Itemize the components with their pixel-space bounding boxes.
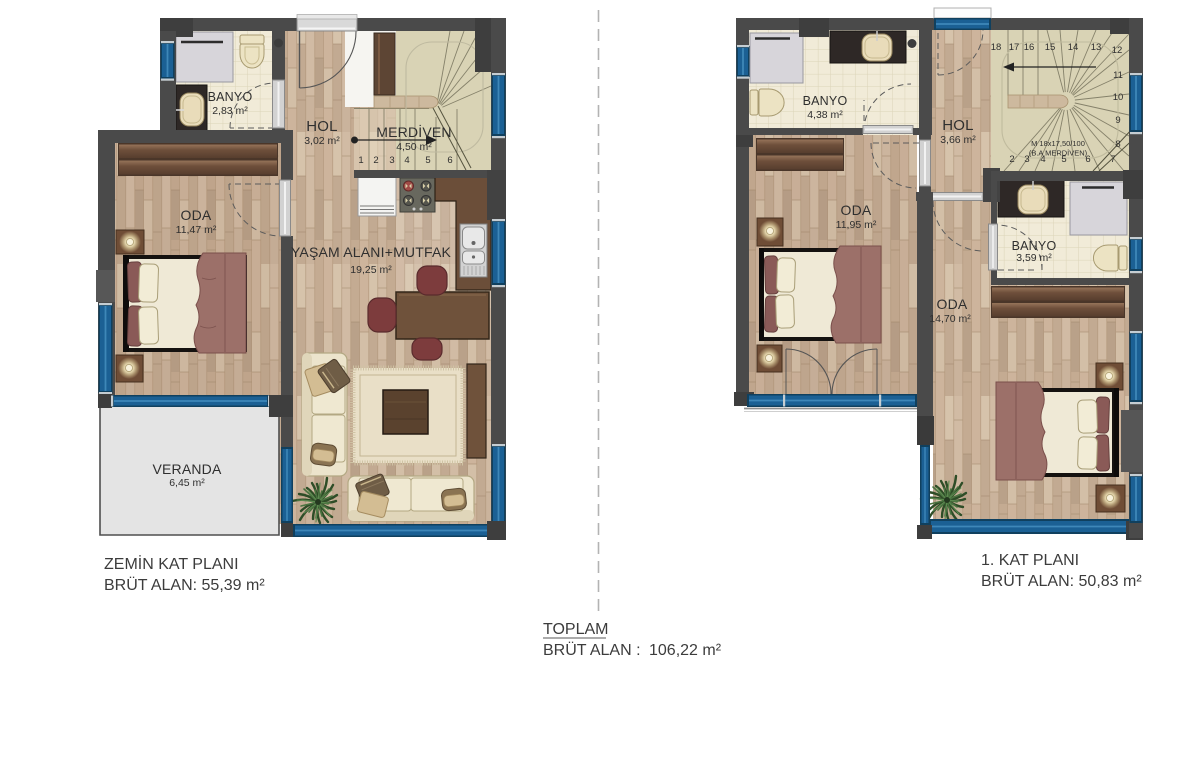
svg-text:18: 18 — [991, 42, 1002, 53]
svg-text:BANYO: BANYO — [1012, 239, 1057, 253]
svg-text:2,83 m²: 2,83 m² — [212, 105, 248, 117]
svg-text:19,25 m²: 19,25 m² — [350, 264, 392, 276]
svg-text:16: 16 — [1024, 42, 1035, 53]
svg-text:5: 5 — [425, 155, 430, 166]
svg-text:11: 11 — [1113, 70, 1123, 81]
svg-text:ODA: ODA — [937, 296, 968, 312]
svg-text:ODA: ODA — [181, 207, 212, 223]
svg-text:2: 2 — [1009, 154, 1014, 165]
svg-text:3,59 m²: 3,59 m² — [1016, 252, 1052, 264]
svg-text:10: 10 — [1113, 92, 1124, 103]
svg-text:3: 3 — [389, 155, 394, 166]
svg-text:2: 2 — [373, 155, 378, 166]
svg-text:1: 1 — [358, 155, 363, 166]
svg-text:BANYO: BANYO — [208, 90, 253, 104]
svg-text:6: 6 — [447, 155, 452, 166]
svg-text:9: 9 — [1115, 115, 1120, 126]
svg-text:HOL: HOL — [306, 118, 337, 135]
svg-text:TOPLAM: TOPLAM — [543, 621, 609, 638]
svg-text:4,38 m²: 4,38 m² — [807, 109, 843, 121]
svg-text:3,66 m²: 3,66 m² — [940, 134, 976, 146]
svg-text:3,02 m²: 3,02 m² — [304, 135, 340, 147]
svg-text:13: 13 — [1091, 42, 1102, 53]
svg-text:11,47 m²: 11,47 m² — [176, 224, 217, 236]
svg-text:14: 14 — [1068, 42, 1079, 53]
svg-text:17: 17 — [1009, 42, 1020, 53]
svg-text:ODA: ODA — [841, 202, 872, 218]
svg-text:15: 15 — [1045, 42, 1056, 53]
svg-text:1. KAT PLANI: 1. KAT PLANI — [981, 552, 1079, 569]
svg-text:YAŞAM ALANI+MUTFAK: YAŞAM ALANI+MUTFAK — [291, 244, 452, 260]
svg-text:MERDİVEN: MERDİVEN — [376, 123, 452, 140]
svg-text:11,95 m²: 11,95 m² — [836, 219, 877, 231]
svg-text:BRÜT ALAN :: BRÜT ALAN : — [543, 641, 641, 659]
svg-text:VERANDA: VERANDA — [152, 461, 222, 477]
svg-text:7: 7 — [1110, 154, 1115, 165]
svg-text:4,50 m²: 4,50 m² — [396, 141, 432, 153]
svg-text:M 18x17,50/100: M 18x17,50/100 — [1031, 139, 1085, 148]
svg-text:4: 4 — [404, 155, 409, 166]
svg-text:12: 12 — [1112, 45, 1123, 56]
svg-text:HOL: HOL — [942, 117, 973, 134]
svg-text:(B.A MERDİVEN): (B.A MERDİVEN) — [1029, 149, 1088, 158]
svg-text:BRÜT ALAN: 55,39 m²: BRÜT ALAN: 55,39 m² — [104, 576, 265, 594]
svg-text:6,45 m²: 6,45 m² — [169, 477, 205, 489]
svg-text:BANYO: BANYO — [803, 94, 848, 108]
svg-text:ZEMİN KAT PLANI: ZEMİN KAT PLANI — [104, 554, 239, 573]
svg-text:BRÜT ALAN: 50,83 m²: BRÜT ALAN: 50,83 m² — [981, 572, 1142, 590]
svg-text:106,22 m²: 106,22 m² — [649, 642, 722, 659]
svg-text:8: 8 — [1115, 139, 1120, 150]
svg-text:14,70 m²: 14,70 m² — [929, 313, 971, 325]
